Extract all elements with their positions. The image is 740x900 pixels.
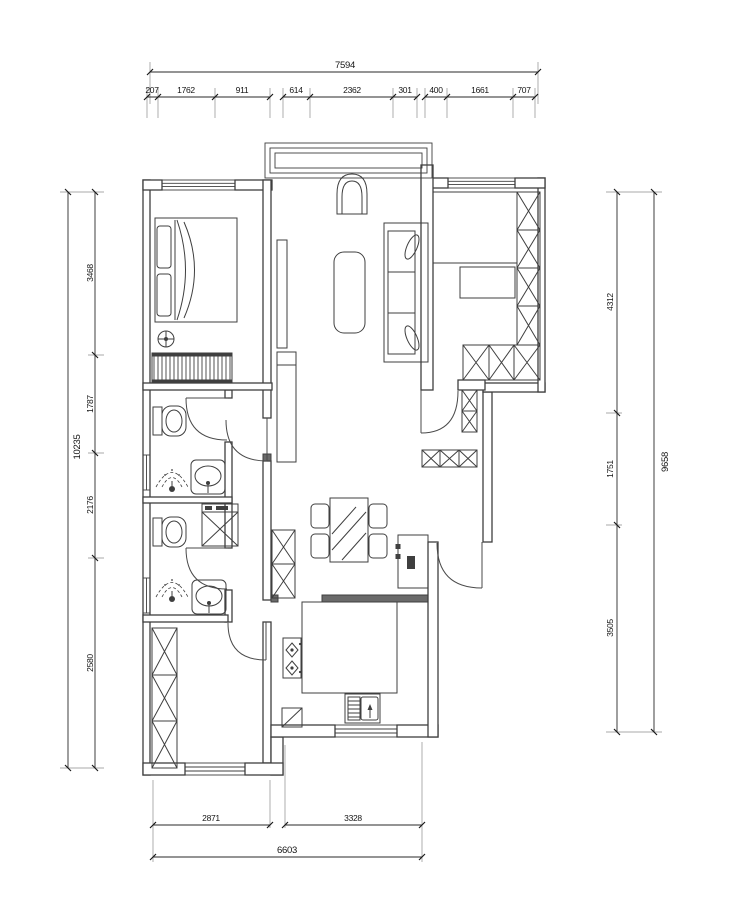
bathroom-2 [153,517,226,614]
corner-shelf [282,708,302,727]
dining-chair [311,534,329,558]
dim-bottom-seg-1: 2871 [202,813,220,823]
dim-top-seg-9: 707 [517,85,531,95]
dim-left-seg-4: 2580 [85,654,95,672]
wall-entry-east [483,392,492,542]
dimension-chain-right: 4312 1751 3505 9658 [605,189,671,735]
wall-west-mid [263,461,271,600]
dim-top-seg-6: 301 [398,85,412,95]
dim-right-seg-1: 4312 [605,293,615,311]
door-bedroom2 [228,622,266,660]
dimension-chain-bottom: 2871 3328 6603 [150,742,425,862]
floor-plan-canvas: 7594 207 1762 911 614 2362 301 400 1661 … [0,0,740,900]
coffee-table [334,252,365,333]
dim-top-seg-3: 911 [236,85,249,95]
walls [143,165,545,775]
washbasin-bathroom1 [191,460,225,494]
wall-bedroom3-south [458,380,485,390]
fridge-label-glyph [407,556,415,569]
wall-bedroom2-bottom-a [143,763,185,775]
dim-right-total: 9658 [660,452,671,472]
toilet-bathroom2 [153,517,186,547]
dim-top-seg-5: 2362 [343,85,361,95]
wall-bath-east-a [225,390,232,398]
dim-right-seg-2: 1751 [605,460,615,478]
wall-west-upper [263,180,271,418]
dining-chair [369,534,387,558]
shower-bathroom2 [156,579,188,602]
bedroom-1 [152,218,237,383]
living-room [277,174,428,462]
wardrobe-bedroom3-south [463,345,540,380]
wall-bedroom2-north [143,615,228,622]
wall-kitchen-east [428,542,438,737]
wall-step [483,383,545,392]
bedroom3-side-table [460,267,515,298]
wall-right-outer [538,178,545,392]
bedroom-2 [152,628,177,768]
shower-bathroom1 [156,469,188,492]
dimension-chain-left: 10235 3468 1787 2176 2580 [60,189,104,771]
dining-chair [369,504,387,528]
dim-bottom-total: 6603 [277,845,297,856]
wall-bedroom2-bottom-b [245,763,283,775]
bathroom-1 [153,406,225,494]
wall-bath-divider [143,497,232,503]
dim-left-total: 10235 [72,435,83,460]
dining-chair [311,504,329,528]
dim-left-seg-3: 2176 [85,496,95,514]
dim-left-seg-2: 1787 [85,395,95,413]
gas-stove [283,638,301,678]
dim-bottom-seg-2: 3328 [344,813,362,823]
cabinet-by-door [462,390,477,432]
door-entry [437,542,482,588]
wardrobe-bedroom2 [152,628,177,768]
dim-left-seg-1: 3468 [85,264,95,282]
shoe-cabinet [422,450,477,467]
kitchen-sink [345,694,380,723]
wall-kitchen-north-b [322,595,428,602]
wall-kitchen-bottom-a [271,725,335,737]
dim-top-seg-8: 1661 [471,85,489,95]
dining-table [330,498,368,562]
door-bathroom1 [186,398,228,440]
toilet-bathroom1 [153,406,186,436]
tv-cabinet [277,240,287,348]
wall-bedroom1-top-a [143,180,162,190]
wall-living-east [421,165,433,390]
door-bedroom3 [421,390,458,433]
window-bedroom3 [448,178,515,188]
window-bedroom1 [162,180,235,190]
kitchen-island [302,602,397,693]
radiator-cabinet [152,353,232,383]
dim-top-seg-7: 400 [429,85,443,95]
dim-top-seg-2: 1762 [177,85,195,95]
washbasin-bathroom2 [192,580,226,614]
double-bed [155,218,237,322]
wardrobe-bedroom3-east [517,192,540,345]
bed-bedroom3 [433,192,517,263]
dim-top-total: 7594 [335,60,355,71]
dim-top-seg-4: 614 [289,85,303,95]
fridge [396,535,429,588]
window-balcony-bay [265,143,432,178]
window-kitchen [335,725,397,737]
bedside-lamp [158,331,174,347]
kitchen [282,602,397,727]
armchair [337,174,367,214]
dimension-chain-top: 7594 207 1762 911 614 2362 301 400 1661 … [144,60,541,118]
dim-top-seg-1: 207 [145,85,159,95]
dim-right-seg-3: 3505 [605,619,615,637]
window-bedroom2 [185,763,245,775]
wall-bedroom3-top-b [515,178,545,188]
sideboard [277,352,296,462]
wall-bedroom2-east [263,622,271,763]
tall-cabinet [272,530,295,598]
wall-bedroom1-south [143,383,272,390]
dining-area [272,498,387,598]
wall-bath-east-b [225,442,232,548]
floor-plan-drawing: 7594 207 1762 911 614 2362 301 400 1661 … [0,0,740,900]
